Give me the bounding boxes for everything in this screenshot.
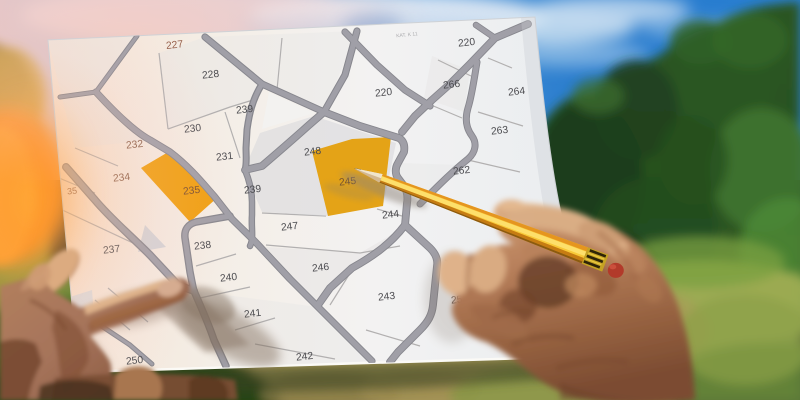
svg-text:242: 242 bbox=[296, 351, 315, 364]
svg-text:244: 244 bbox=[382, 209, 401, 222]
svg-text:266: 266 bbox=[443, 79, 462, 92]
svg-text:243: 243 bbox=[378, 291, 397, 304]
svg-text:246: 246 bbox=[312, 262, 331, 275]
svg-text:220: 220 bbox=[375, 87, 394, 100]
svg-text:239: 239 bbox=[236, 104, 255, 117]
svg-text:263: 263 bbox=[491, 125, 510, 138]
svg-text:262: 262 bbox=[453, 165, 472, 178]
svg-text:239: 239 bbox=[244, 184, 263, 197]
svg-text:264: 264 bbox=[508, 86, 527, 99]
svg-text:220: 220 bbox=[458, 37, 477, 50]
svg-text:247: 247 bbox=[281, 221, 300, 234]
svg-text:248: 248 bbox=[304, 146, 323, 159]
